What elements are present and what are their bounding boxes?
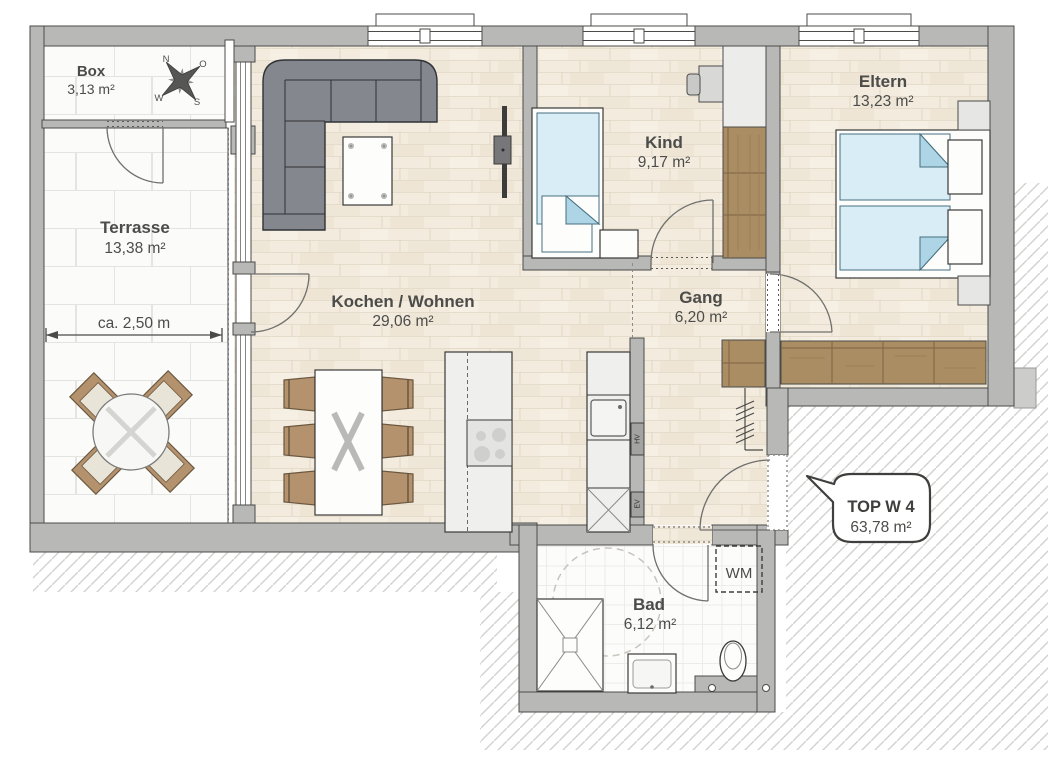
outer-wall-lip — [1014, 368, 1036, 408]
kind-dresser — [600, 230, 638, 258]
eltern-nightstand-bottom — [958, 276, 990, 305]
compass-n: N — [163, 54, 170, 65]
kochen-wohnen-name: Kochen / Wohnen — [331, 292, 474, 311]
glass-wall-mullion-door-bottom — [233, 323, 255, 335]
shower — [537, 599, 603, 691]
glass-wall-frame — [236, 46, 251, 523]
compass-w: W — [155, 93, 164, 104]
floorplan-drawing: HV EV — [0, 0, 1062, 757]
hatch-area-below-bath — [480, 712, 792, 750]
glass-wall-mullion-top — [233, 46, 255, 62]
bad-area: 6,12 m² — [624, 616, 677, 633]
kitchen-tall-unit — [587, 352, 630, 532]
eltern-bed — [836, 130, 990, 278]
window-eltern — [799, 14, 919, 46]
kind-area: 9,17 m² — [638, 154, 691, 171]
eltern-name: Eltern — [859, 72, 907, 91]
gang-cabinet — [722, 340, 765, 387]
eltern-wardrobe — [781, 341, 986, 384]
terrasse-area: 13,38 m² — [104, 240, 165, 257]
bad-name: Bad — [633, 595, 665, 614]
wall-bad-left — [519, 525, 537, 712]
windows — [368, 14, 919, 46]
kind-niche — [723, 46, 766, 127]
compass-o: O — [199, 59, 206, 70]
wall-left — [30, 26, 44, 552]
eltern-area: 13,23 m² — [852, 93, 913, 110]
hatch-area-left-of-bath — [480, 592, 520, 715]
glass-wall-mullion-bottom — [233, 505, 255, 523]
kochen-wohnen-area: 29,06 m² — [372, 313, 433, 330]
toilet — [720, 641, 746, 681]
ev-label: EV — [635, 499, 642, 509]
box-area: 3,13 m² — [67, 81, 115, 97]
glass-wall-west — [225, 40, 255, 523]
glass-wall-mullion-door-top — [233, 262, 255, 274]
wall-kind-eltern — [766, 46, 780, 272]
kind-bed — [532, 108, 603, 258]
eltern-nightstand-top — [958, 101, 990, 130]
floorplan-page: HV EV — [0, 0, 1062, 757]
box-name: Box — [77, 63, 106, 80]
terrasse-name: Terrasse — [100, 218, 170, 237]
gang-name: Gang — [679, 288, 722, 307]
dining-set — [284, 370, 413, 515]
hatch-area-bottom-left — [33, 552, 497, 592]
cooktop — [467, 420, 512, 466]
bad-drain-right — [763, 685, 770, 692]
unit-callout-area: 63,78 m² — [850, 519, 911, 536]
eltern-pillow-bottom — [948, 210, 982, 264]
opening-eltern-fill — [766, 274, 780, 332]
wall-bad-bottom — [519, 692, 775, 712]
kind-name: Kind — [645, 133, 683, 152]
washbasin — [628, 654, 676, 693]
coffee-table — [343, 137, 392, 205]
wall-right — [988, 26, 1014, 406]
kitchen-faucet — [618, 405, 622, 409]
eltern-pillow-top — [948, 140, 982, 194]
unit-callout-title: TOP W 4 — [847, 498, 915, 516]
opening-bad-fill — [653, 526, 712, 544]
kind-wardrobe — [723, 127, 766, 258]
window-living — [368, 14, 482, 46]
bad-drain-left — [709, 685, 716, 692]
terrasse-dimension-label: ca. 2,50 m — [98, 315, 170, 332]
box-living-window — [225, 40, 234, 122]
hv-label: HV — [635, 434, 642, 444]
hatch-area-right — [786, 406, 1048, 750]
opening-entrance-fill — [767, 455, 788, 530]
compass-s: S — [194, 97, 200, 108]
wall-eltern-bottom — [766, 388, 1014, 406]
wall-entrance-upper — [767, 388, 788, 455]
window-kind — [583, 14, 695, 46]
wall-bad-right — [757, 525, 775, 712]
washing-machine-label: WM — [726, 565, 753, 582]
gang-area: 6,20 m² — [675, 309, 728, 326]
